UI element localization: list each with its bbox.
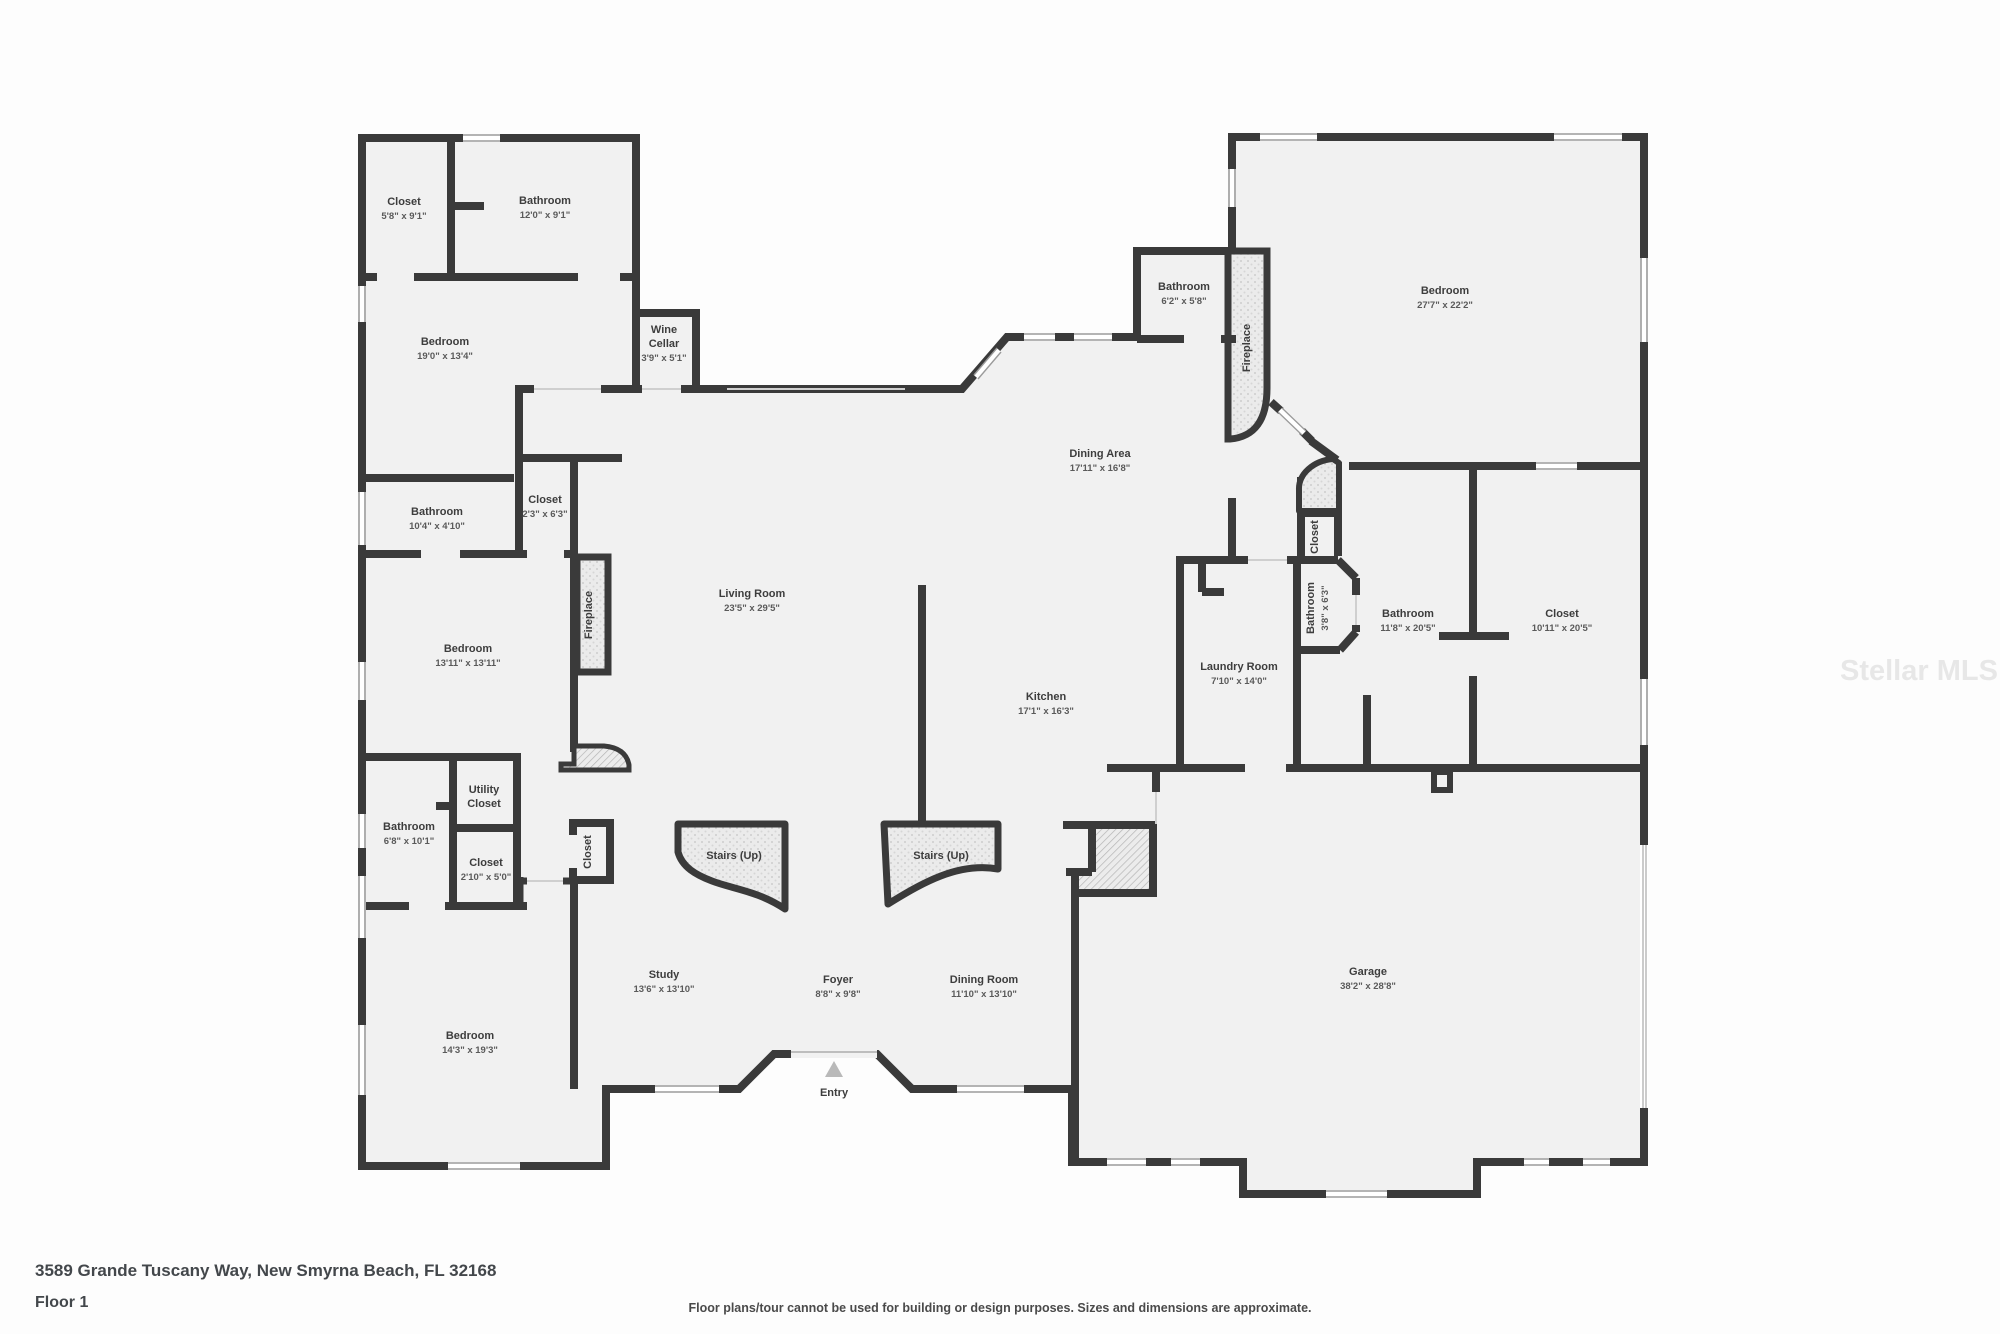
svg-text:Kitchen: Kitchen [1026,691,1067,703]
svg-text:Bedroom: Bedroom [444,643,493,655]
svg-text:12'0" x 9'1": 12'0" x 9'1" [520,210,571,221]
svg-text:Garage: Garage [1349,966,1387,978]
svg-text:Closet: Closet [528,494,562,506]
svg-text:Laundry Room: Laundry Room [1200,661,1278,673]
svg-text:Stellar MLS: Stellar MLS [1840,655,1998,687]
svg-text:Stairs (Up): Stairs (Up) [706,850,762,862]
svg-text:Closet: Closet [582,835,594,869]
svg-text:Fireplace: Fireplace [583,591,595,639]
svg-text:Closet: Closet [469,857,503,869]
svg-text:Closet: Closet [1545,608,1579,620]
svg-text:6'2" x 5'8": 6'2" x 5'8" [1161,296,1206,307]
svg-text:Closet: Closet [387,196,421,208]
svg-text:Stairs (Up): Stairs (Up) [913,850,969,862]
svg-text:2'3" x 6'3": 2'3" x 6'3" [522,509,567,520]
svg-text:Closet: Closet [467,798,501,810]
svg-text:Study: Study [649,969,680,981]
svg-text:Bedroom: Bedroom [446,1030,495,1042]
svg-text:6'8" x 10'1": 6'8" x 10'1" [384,836,435,847]
svg-text:17'11" x 16'8": 17'11" x 16'8" [1070,463,1131,474]
svg-text:11'10" x 13'10": 11'10" x 13'10" [951,989,1017,1000]
svg-text:2'10" x 5'0": 2'10" x 5'0" [461,872,512,883]
svg-text:Bedroom: Bedroom [421,336,470,348]
svg-text:11'8" x 20'5": 11'8" x 20'5" [1380,623,1435,634]
svg-text:Fireplace: Fireplace [1241,324,1253,372]
svg-text:Bathroom: Bathroom [1382,608,1434,620]
svg-text:Foyer: Foyer [823,974,854,986]
svg-text:5'8" x 9'1": 5'8" x 9'1" [381,211,426,222]
svg-text:27'7" x 22'2": 27'7" x 22'2" [1417,300,1473,311]
svg-text:Bathroom: Bathroom [519,195,571,207]
svg-text:10'4" x 4'10": 10'4" x 4'10" [409,521,465,532]
svg-text:13'6" x 13'10": 13'6" x 13'10" [633,984,694,995]
svg-text:Dining Room: Dining Room [950,974,1019,986]
svg-text:14'3" x 19'3": 14'3" x 19'3" [442,1045,498,1056]
svg-text:3589 Grande Tuscany Way, New S: 3589 Grande Tuscany Way, New Smyrna Beac… [35,1261,496,1280]
svg-text:3'9" x 5'1": 3'9" x 5'1" [641,353,686,364]
svg-text:10'11" x 20'5": 10'11" x 20'5" [1532,623,1593,634]
svg-text:Bathroom: Bathroom [1305,582,1317,634]
svg-text:17'1" x 16'3": 17'1" x 16'3" [1018,706,1074,717]
svg-text:Entry: Entry [820,1087,849,1099]
svg-text:19'0" x 13'4": 19'0" x 13'4" [417,351,473,362]
svg-text:Living Room: Living Room [719,588,786,600]
svg-text:3'8" x 6'3": 3'8" x 6'3" [1320,585,1331,630]
svg-text:Bathroom: Bathroom [383,821,435,833]
svg-text:8'8" x 9'8": 8'8" x 9'8" [815,989,860,1000]
svg-text:Bathroom: Bathroom [411,506,463,518]
svg-text:Bathroom: Bathroom [1158,281,1210,293]
svg-text:13'11" x 13'11": 13'11" x 13'11" [435,658,500,669]
svg-text:Utility: Utility [469,784,500,796]
svg-text:Closet: Closet [1309,520,1321,554]
svg-text:Floor plans/tour cannot be use: Floor plans/tour cannot be used for buil… [688,1301,1311,1315]
svg-text:Dining Area: Dining Area [1069,448,1131,460]
svg-text:Bedroom: Bedroom [1421,285,1470,297]
svg-text:Wine: Wine [651,324,677,336]
svg-text:Floor 1: Floor 1 [35,1294,88,1311]
svg-text:38'2" x 28'8": 38'2" x 28'8" [1340,981,1396,992]
svg-text:Cellar: Cellar [649,338,680,350]
svg-text:23'5" x 29'5": 23'5" x 29'5" [724,603,780,614]
svg-text:7'10" x 14'0": 7'10" x 14'0" [1211,676,1267,687]
